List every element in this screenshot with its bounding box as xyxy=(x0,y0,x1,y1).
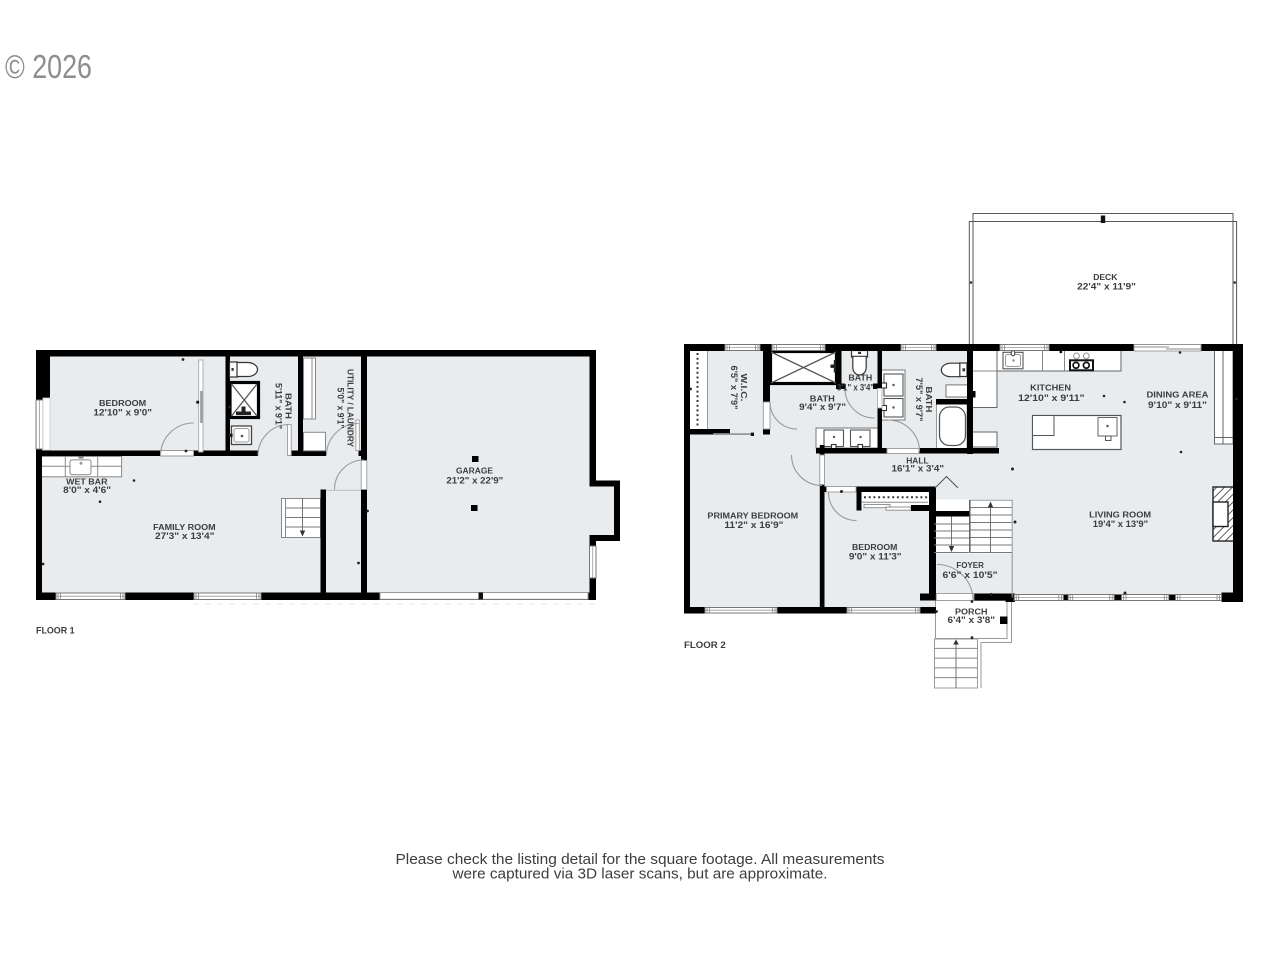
svg-text:9'0" x 11'3": 9'0" x 11'3" xyxy=(849,552,902,562)
svg-text:LIVING ROOM: LIVING ROOM xyxy=(1089,509,1151,519)
svg-text:7'5" x 9'7": 7'5" x 9'7" xyxy=(914,378,924,422)
svg-text:6'5" x 7'9": 6'5" x 7'9" xyxy=(729,366,739,410)
svg-text:GARAGE: GARAGE xyxy=(456,466,493,476)
svg-text:were captured via 3D laser sca: were captured via 3D laser scans, but ar… xyxy=(451,867,827,883)
svg-text:5'11" x 9'1": 5'11" x 9'1" xyxy=(274,383,284,429)
svg-text:5'0" x 9'1": 5'0" x 9'1" xyxy=(336,388,346,429)
svg-text:9'4" x 9'7": 9'4" x 9'7" xyxy=(799,402,846,412)
svg-text:27'3" x 13'4": 27'3" x 13'4" xyxy=(155,531,214,541)
svg-text:9'10" x 9'11": 9'10" x 9'11" xyxy=(1148,400,1207,410)
svg-text:KITCHEN: KITCHEN xyxy=(1030,382,1071,392)
svg-text:PRIMARY BEDROOM: PRIMARY BEDROOM xyxy=(707,510,798,520)
svg-text:DINING AREA: DINING AREA xyxy=(1147,390,1210,400)
svg-text:FOYER: FOYER xyxy=(956,560,984,570)
svg-text:BATH: BATH xyxy=(284,393,294,419)
svg-text:BATH: BATH xyxy=(924,387,934,413)
svg-text:16'1" x 3'4": 16'1" x 3'4" xyxy=(892,464,945,474)
svg-text:© 2026: © 2026 xyxy=(5,48,92,85)
svg-text:6'4" x 3'8": 6'4" x 3'8" xyxy=(948,615,996,625)
svg-text:3'1" x 3'4": 3'1" x 3'4" xyxy=(837,383,874,393)
svg-text:BEDROOM: BEDROOM xyxy=(99,398,146,408)
svg-text:W.I.C.: W.I.C. xyxy=(739,374,749,402)
svg-text:12'10" x 9'11": 12'10" x 9'11" xyxy=(1018,393,1085,403)
svg-text:22'4" x 11'9": 22'4" x 11'9" xyxy=(1077,281,1136,291)
svg-text:12'10" x 9'0": 12'10" x 9'0" xyxy=(93,408,152,418)
svg-text:UTILITY / LAUNDRY: UTILITY / LAUNDRY xyxy=(346,369,356,447)
svg-text:11'2" x 16'9": 11'2" x 16'9" xyxy=(724,520,783,530)
svg-text:FLOOR 2: FLOOR 2 xyxy=(684,640,726,651)
svg-text:19'4" x 13'9": 19'4" x 13'9" xyxy=(1093,519,1148,529)
svg-text:8'0" x 4'6": 8'0" x 4'6" xyxy=(63,485,111,495)
svg-text:6'6" x 10'5": 6'6" x 10'5" xyxy=(943,570,998,580)
svg-text:21'2" x 22'9": 21'2" x 22'9" xyxy=(446,475,503,485)
svg-text:BATH: BATH xyxy=(848,372,872,382)
svg-text:FLOOR 1: FLOOR 1 xyxy=(36,626,75,637)
svg-text:BEDROOM: BEDROOM xyxy=(852,542,897,552)
